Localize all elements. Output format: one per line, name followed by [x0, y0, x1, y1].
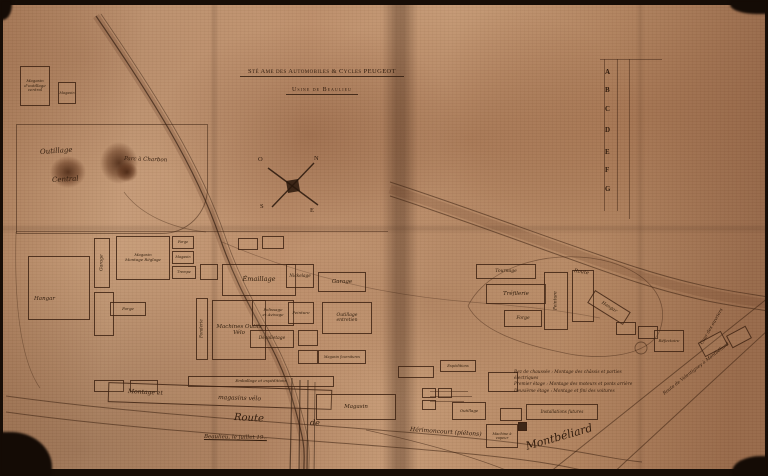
building: Magasin [172, 251, 194, 264]
building: Magasin fournitures [318, 350, 366, 364]
building: Réfectoire [654, 330, 684, 352]
floors-note: Rez de chaussée : Montage des châssis et… [514, 370, 646, 395]
building [438, 388, 452, 398]
rule-line [629, 59, 630, 219]
map-label: Beaulieu, le juillet 19.. [204, 434, 267, 441]
rule-line [617, 59, 618, 211]
legend-letter: A [605, 68, 610, 76]
building: Forge [172, 236, 194, 249]
building: Magasin d'outillage central [20, 66, 50, 106]
building: Tournage [476, 264, 536, 279]
torn-edge-bottom [0, 469, 768, 476]
building: Nickelage [286, 264, 314, 288]
building: Garage [94, 238, 110, 288]
plan-title: Sté Ame des Automobiles & Cycles PEUGEOT [240, 68, 404, 77]
building: Garage [318, 272, 366, 292]
legend-letter: F [605, 166, 609, 174]
building: Tréfilerie [486, 284, 546, 304]
building [298, 350, 318, 364]
building: Peinture [288, 302, 314, 324]
rule-line [16, 231, 388, 232]
torn-edge-left [0, 0, 3, 476]
torn-edge-top [0, 0, 768, 5]
building: Forge [110, 302, 146, 316]
floors-note-line: Deuxième étage : Montage et fini des voi… [514, 389, 646, 395]
floors-note-line: Rez de chaussée : Montage des châssis et… [514, 370, 646, 382]
map-label: Hangar [34, 296, 55, 302]
legend-letter: E [605, 148, 610, 156]
building [28, 256, 90, 320]
building [422, 400, 436, 410]
building: Magasin Montage Réglage [116, 236, 170, 280]
building: Outillage [452, 402, 486, 420]
map-label: magasins vélo [218, 394, 261, 402]
title-block: Sté Ame des Automobiles & Cycles PEUGEOT… [232, 60, 412, 96]
building [298, 330, 318, 346]
legend-letter: C [605, 105, 610, 113]
building: Fonderie [196, 298, 208, 360]
building: Outillage entretien [322, 302, 372, 334]
building [616, 322, 636, 335]
building: Émaillage [222, 264, 296, 296]
building: Forge [504, 310, 542, 327]
building [200, 264, 218, 280]
compass-rose [268, 163, 318, 207]
compass-east-label: E [310, 207, 314, 214]
building [422, 388, 436, 398]
building [262, 236, 284, 249]
building: Magasin [316, 394, 396, 420]
enclosure-outline [16, 124, 208, 234]
map-label: Route [234, 412, 264, 425]
legend-letter: B [605, 86, 610, 94]
building [238, 238, 258, 250]
building: Machine à vapeur [486, 424, 518, 448]
legend-letter: G [605, 185, 610, 193]
map-label: de [310, 418, 320, 428]
building: Expéditions [440, 360, 476, 372]
building [500, 408, 522, 421]
building [398, 366, 434, 378]
map-label: Central [52, 175, 79, 184]
building [518, 422, 527, 431]
floors-note-line: Premier étage : Montage des moteurs et p… [514, 382, 646, 388]
building: Magasin [58, 82, 76, 104]
plan-subtitle: Usine de Beaulieu [286, 87, 358, 95]
compass-north-label: N [314, 155, 319, 162]
building: Peinture [544, 272, 568, 330]
rule-line [600, 59, 662, 60]
compass-west-label: O [258, 156, 263, 163]
building: Trempe [172, 266, 196, 279]
legend-letter: D [605, 126, 610, 134]
compass-south-label: S [260, 203, 264, 210]
building: Décolletage [250, 330, 294, 348]
scanned-factory-plan: Sté Ame des Automobiles & Cycles PEUGEOT… [0, 0, 768, 476]
building: Installations futures [526, 404, 598, 420]
